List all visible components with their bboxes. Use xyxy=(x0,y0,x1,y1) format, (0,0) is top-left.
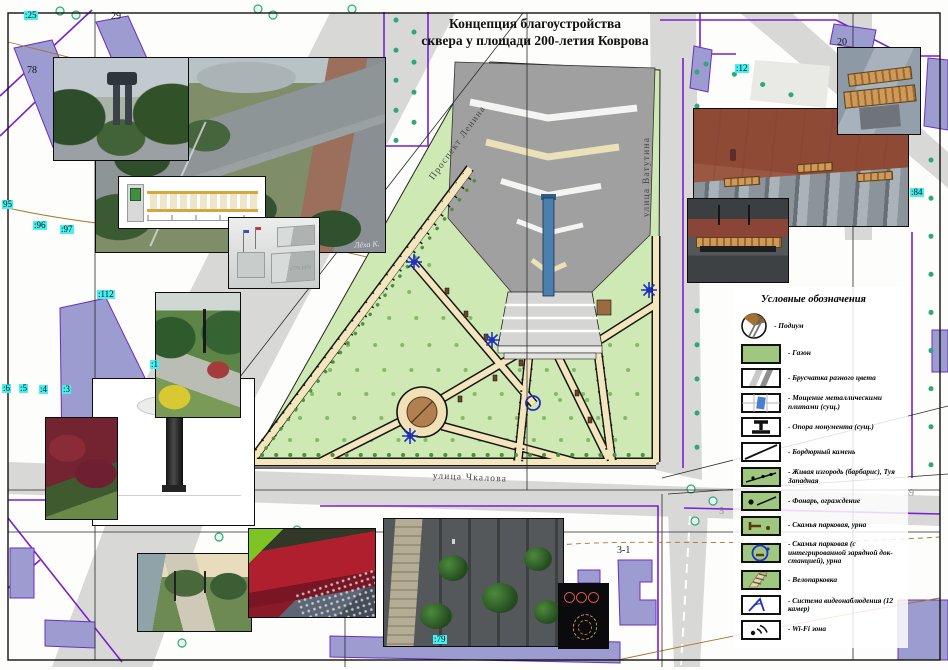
legend-item-label: - Газон xyxy=(788,349,811,358)
light-ring xyxy=(564,592,575,603)
lawn-icon xyxy=(741,344,781,364)
light-spiral xyxy=(578,620,592,635)
legend-item-label: - Живая изгородь (барбарис), Туя Западна… xyxy=(788,468,904,485)
wifi-icon xyxy=(741,620,781,640)
parcel-label: :25 xyxy=(24,11,38,20)
photo-red-hedge xyxy=(248,528,376,618)
tree-crown xyxy=(482,583,518,613)
legend-item: - Брусчатка разного цвета xyxy=(741,368,904,388)
monument-support-icon xyxy=(741,417,781,437)
parcel-label: 20 xyxy=(836,38,848,49)
legend-item: - Живая изгородь (барбарис), Туя Западна… xyxy=(741,467,904,487)
legend-item-label: - Скамья парковая, урна xyxy=(788,521,866,530)
lamp-post xyxy=(204,571,206,593)
legend-item: - Велопарковка xyxy=(741,570,904,590)
photo-park-path xyxy=(155,292,241,418)
bench xyxy=(796,162,833,173)
light-ring xyxy=(576,592,587,603)
parcel-label: :12 xyxy=(735,64,749,73)
bench-charging-icon xyxy=(741,543,781,563)
photo-barberry-hedge xyxy=(45,417,118,520)
seated-person xyxy=(730,149,736,161)
legend-item: - Система видеонаблюдения (12 камер) xyxy=(741,595,904,615)
parcel-label: 78 xyxy=(26,66,38,77)
parcel-label: :5 xyxy=(19,384,28,393)
photo-light-rings xyxy=(558,583,609,649)
ground-line xyxy=(106,495,241,496)
long-bench-base xyxy=(700,246,776,252)
monument-pylon xyxy=(113,85,120,125)
parcel-label: :97 xyxy=(60,225,74,234)
drawing-title: Концепция благоустройства сквера у площа… xyxy=(368,16,702,50)
hedge-icon xyxy=(741,467,781,487)
legend-item: - Подиум xyxy=(741,313,904,339)
drawing-sheet: Концепция благоустройства сквера у площа… xyxy=(0,0,948,670)
legend-item: - Мощение металлическими плитами (сущ.) xyxy=(741,393,904,413)
flag-icon xyxy=(255,227,256,249)
parcel-label: :96 xyxy=(33,221,47,230)
bench-urn-icon xyxy=(741,516,781,536)
cctv-icon xyxy=(741,595,781,615)
street-label-vatutina: улица Ватутина xyxy=(642,117,652,237)
parcel-label: :1 xyxy=(150,360,159,369)
legend-item-label: - Брусчатка разного цвета xyxy=(788,374,876,383)
tree-crown xyxy=(524,547,552,571)
photo-plaza-aerial xyxy=(383,518,564,647)
tree-crown xyxy=(438,555,468,581)
tree-crown xyxy=(420,603,452,629)
photo-park-lanterns xyxy=(137,553,252,632)
parcel-label: :4 xyxy=(39,385,48,394)
photo-existing-monument xyxy=(53,57,189,161)
pedestrian xyxy=(452,539,455,544)
legend-item: - Скамья парковая (с интегрированной зар… xyxy=(741,540,904,566)
legend-item: - Скамья парковая, урна xyxy=(741,516,904,536)
pavers-icon xyxy=(741,368,781,388)
legend-items: - Подиум - Газон - Брусчатка разного цве… xyxy=(739,313,904,640)
legend-item-label: - Бордюрный камень xyxy=(788,448,855,457)
stela-block xyxy=(277,225,315,248)
legend: Условные обозначения - Подиум - Газон - … xyxy=(733,287,908,648)
render-bench-closeup xyxy=(837,47,921,135)
bike-parking-icon xyxy=(741,570,781,590)
bollard xyxy=(718,205,720,225)
stela-pedestal xyxy=(237,252,265,278)
legend-item-label: - Мощение металлическими плитами (сущ.) xyxy=(788,394,904,411)
legend-item-label: - Скамья парковая (с интегрированной зар… xyxy=(788,540,904,566)
light-ring xyxy=(588,592,599,603)
lamp-post xyxy=(203,309,206,353)
bench-base xyxy=(859,104,901,129)
photo-signature: Лёха К. xyxy=(354,239,380,250)
legend-item-label: - Wi-Fi зона xyxy=(788,625,826,634)
lantern-base xyxy=(162,485,186,492)
title-line-1: Концепция благоустройства xyxy=(368,16,702,33)
podium-icon xyxy=(741,313,767,339)
flag-icon xyxy=(243,230,244,252)
parcel-label: :6 xyxy=(2,384,11,393)
parcel-label: 5 xyxy=(718,507,725,518)
podium xyxy=(397,387,447,437)
bench-backrest xyxy=(847,66,912,87)
legend-item-label: - Подиум xyxy=(774,322,804,331)
parcel-label: 95 xyxy=(2,200,13,209)
elevation-colonnade xyxy=(147,191,258,212)
curb-icon xyxy=(741,442,781,462)
legend-item-label: - Система видеонаблюдения (12 камер) xyxy=(788,597,904,614)
parcel-label: :84 xyxy=(910,188,924,197)
legend-item: - Wi-Fi зона xyxy=(741,620,904,640)
parcel-label: :112 xyxy=(97,290,115,299)
gravel-texture xyxy=(294,567,376,618)
metal-plates-icon xyxy=(741,393,781,413)
legend-title: Условные обозначения xyxy=(761,294,904,305)
monument-sculpture xyxy=(107,72,137,85)
legend-item-label: - Велопарковка xyxy=(788,576,837,585)
legend-item-label: - Фонарь, ограждение xyxy=(788,497,860,506)
parcel-label: 3-1 xyxy=(616,546,631,557)
lantern-fence-icon xyxy=(741,491,781,511)
stela-block: 1778 1978 xyxy=(271,250,315,283)
title-line-2: сквера у площади 200-летия Коврова xyxy=(368,33,702,50)
parcel-label: 29 xyxy=(110,12,122,23)
monument-pylon xyxy=(125,85,132,125)
parcel-label: :79 xyxy=(433,635,447,644)
parcel-label: :3 xyxy=(62,385,71,394)
photo-long-bench xyxy=(687,198,789,283)
legend-item-label: - Опора монумента (сущ.) xyxy=(788,423,874,432)
legend-item: - Газон xyxy=(741,344,904,364)
bollard xyxy=(748,205,750,225)
legend-item: - Фонарь, ограждение xyxy=(741,491,904,511)
legend-item: - Бордюрный камень xyxy=(741,442,904,462)
inset-stela-renders: 1778 1978 xyxy=(228,217,320,289)
legend-item: - Опора монумента (сущ.) xyxy=(741,417,904,437)
lantern-column xyxy=(166,411,183,487)
lamp-post xyxy=(174,571,176,601)
kovrov-crest-icon xyxy=(130,188,141,201)
